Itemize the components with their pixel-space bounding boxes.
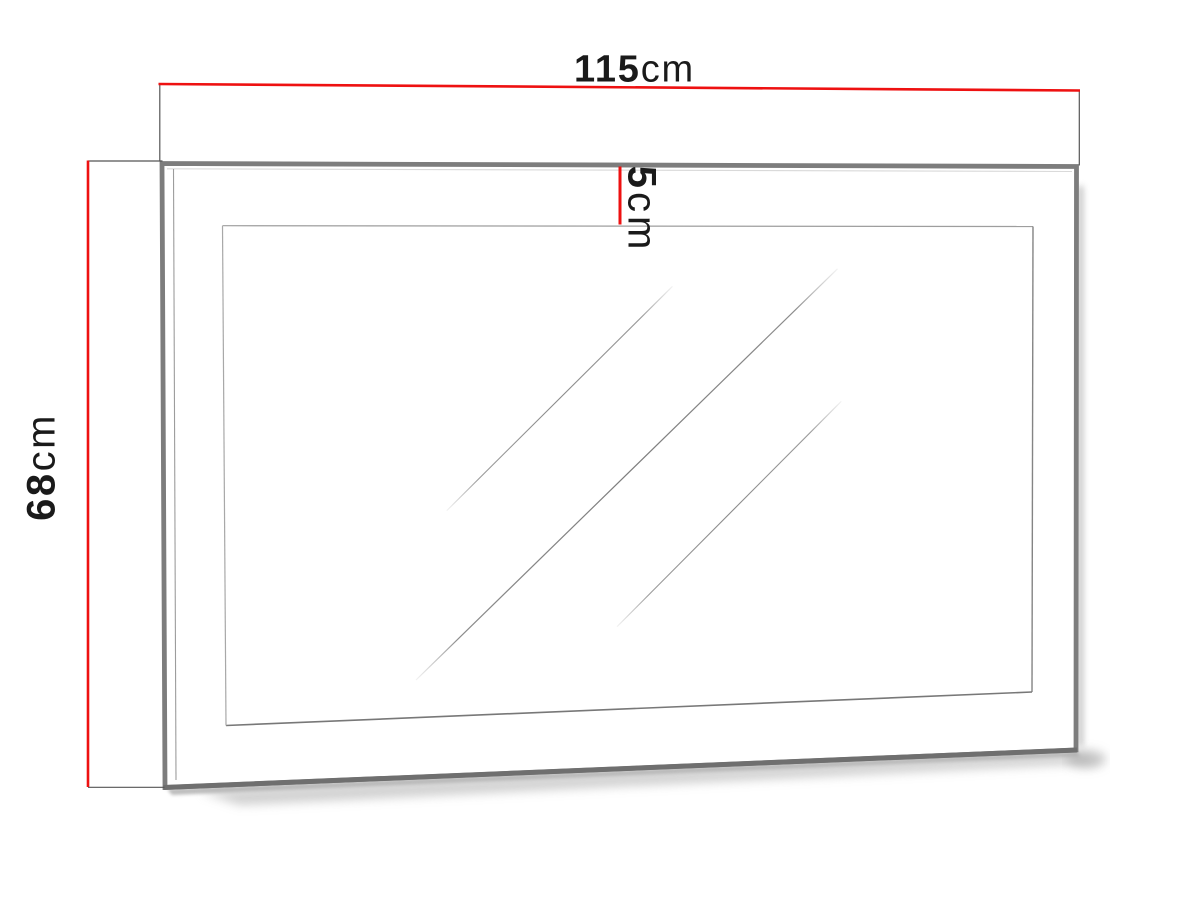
svg-text:68cm: 68cm [20,413,64,521]
svg-text:5cm: 5cm [620,166,664,254]
svg-text:115cm: 115cm [574,49,695,91]
